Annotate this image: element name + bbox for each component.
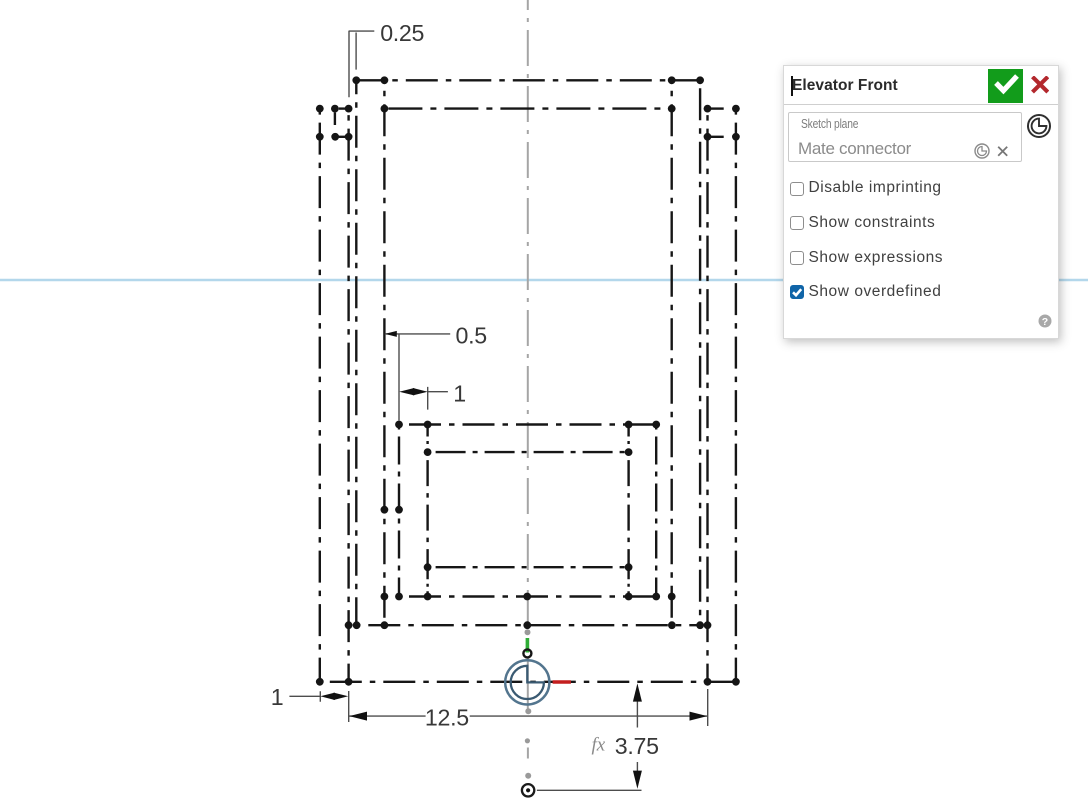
- svg-text:?: ?: [1042, 316, 1048, 328]
- svg-text:1: 1: [453, 380, 466, 406]
- svg-text:0.5: 0.5: [456, 323, 487, 349]
- svg-text:1: 1: [271, 684, 284, 710]
- svg-text:0.25: 0.25: [380, 20, 424, 46]
- svg-text:12.5: 12.5: [425, 705, 469, 731]
- svg-text:3.75: 3.75: [615, 733, 659, 759]
- svg-text:fx: fx: [592, 735, 606, 756]
